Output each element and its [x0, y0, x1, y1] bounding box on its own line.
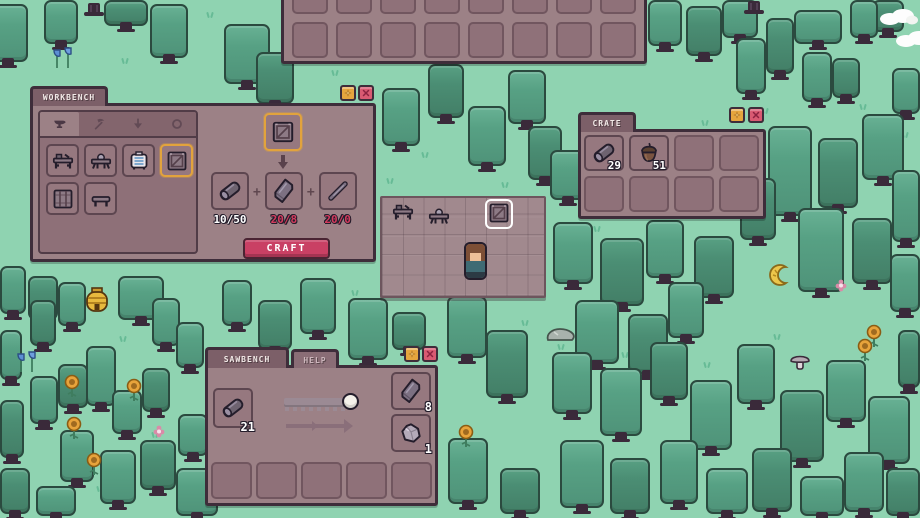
furnace-icon [127, 149, 151, 173]
tree-trunk [659, 42, 671, 52]
workbench-settings-button[interactable] [340, 85, 356, 101]
tree [826, 360, 866, 422]
inventory-slot-empty[interactable] [424, 0, 460, 14]
tree-trunk [897, 512, 909, 518]
tree [898, 330, 920, 388]
player-character [464, 242, 487, 280]
sawbench-output-chunk-slot[interactable]: 1 [391, 414, 431, 452]
tree [382, 88, 420, 146]
inventory-slot-empty[interactable] [600, 0, 636, 14]
tree-trunk [708, 294, 720, 304]
saw-progress-track [284, 398, 350, 407]
tree [766, 18, 794, 74]
workbench-close-button[interactable] [358, 85, 374, 101]
crate-slot-empty[interactable] [719, 176, 759, 212]
tree [30, 376, 58, 424]
placed-workbench[interactable] [391, 200, 425, 230]
item-count: 51 [653, 159, 666, 172]
craftable-bench-slot[interactable] [84, 182, 117, 215]
grass-tuft [350, 290, 359, 296]
tree [104, 0, 148, 26]
tree [610, 458, 650, 514]
tree [660, 440, 698, 504]
tree [44, 0, 78, 44]
crate-title: CRATE [578, 112, 636, 132]
craftable-furnace-slot[interactable] [122, 144, 155, 177]
tree-trunk [877, 176, 889, 186]
tree [428, 64, 464, 118]
flower-blue [50, 44, 76, 72]
game-viewport: WORKBENCH 10/50 [0, 0, 920, 518]
cloud [894, 30, 920, 48]
tree [686, 6, 722, 56]
tree [552, 352, 592, 414]
tree-trunk [705, 446, 717, 456]
tree [58, 282, 86, 326]
flower-pink [834, 278, 848, 292]
tree-trunk [241, 80, 253, 90]
tree [222, 280, 252, 326]
sawbench-title-label: SAWBENCH [224, 355, 271, 364]
tree-trunk [6, 454, 18, 464]
grass-tuft [858, 104, 867, 110]
crate-slot-acorn[interactable]: 51 [629, 135, 669, 171]
tree-trunk [160, 342, 172, 352]
tree [844, 452, 884, 512]
tree [890, 254, 920, 312]
sunflower [857, 338, 873, 364]
tree-trunk [866, 280, 878, 290]
grass-tuft [330, 70, 339, 76]
sawbench-input-slot[interactable]: 21 [213, 388, 253, 428]
tab-ring[interactable] [157, 112, 196, 136]
player-sprite [464, 242, 487, 280]
grass-tuft [500, 182, 509, 188]
craft-button[interactable]: CRAFT [243, 238, 330, 259]
tree [892, 68, 920, 114]
inventory-slot-empty[interactable] [424, 22, 460, 58]
tree-trunk [774, 70, 786, 80]
saw-slider-knob[interactable] [342, 393, 359, 410]
tree-trunk [812, 40, 824, 50]
workbench-title: WORKBENCH [30, 86, 108, 106]
tree-trunk [312, 330, 324, 340]
craftable-sawbench-slot[interactable] [84, 144, 117, 177]
grass-tuft [592, 226, 601, 232]
item-count: 1 [425, 442, 432, 456]
craftable-workbench-slot[interactable] [46, 144, 79, 177]
tree-trunk [461, 354, 473, 364]
tree [150, 4, 188, 58]
craftable-items-grid [46, 144, 193, 215]
tree-trunk [2, 58, 14, 68]
ingredient-log-count: 10/50 [213, 213, 246, 226]
plus-sign: + [253, 185, 261, 200]
tree-trunk [514, 510, 526, 518]
tree [802, 52, 832, 102]
tab-arrow-down[interactable] [118, 112, 157, 136]
grass-tuft [205, 12, 214, 18]
arrow-down-icon [130, 116, 146, 132]
tree-trunk [900, 238, 912, 248]
sawbench-icon [427, 204, 451, 228]
tree [553, 222, 593, 284]
tree [0, 4, 28, 62]
tree-trunk [7, 310, 19, 320]
ingredient-plank-slot[interactable] [265, 172, 303, 210]
grass-tuft [420, 152, 429, 158]
recipe-row: 10/50 + 20/8 + 20/0 [211, 172, 357, 226]
arrow-down-indicator [278, 155, 288, 170]
tree [892, 170, 920, 242]
grass-tuft [120, 58, 129, 64]
log-icon [220, 395, 246, 421]
stick-icon [325, 178, 351, 204]
tree-trunk [811, 98, 823, 108]
sparkle-icon [732, 110, 742, 120]
tree [392, 312, 426, 350]
tree-trunk [163, 54, 175, 64]
sparkle-icon [343, 88, 353, 98]
tree-trunk [591, 360, 603, 370]
tree-trunk [395, 142, 407, 152]
sunflower [458, 424, 474, 450]
sawbench-icon [89, 149, 113, 173]
workbench-catalog [38, 110, 198, 254]
tree-trunk [858, 508, 870, 518]
player-hair [466, 244, 485, 253]
crate-slot-grid: 29 51 [584, 135, 759, 212]
tree-trunk [903, 384, 915, 394]
cloud [878, 8, 918, 26]
crate-close-button[interactable] [748, 107, 764, 123]
tree-trunk [663, 396, 675, 406]
tab-anvil[interactable] [40, 112, 79, 136]
tree [142, 368, 170, 412]
tree-trunk [120, 22, 132, 32]
tree [800, 476, 844, 516]
item-count: 29 [608, 159, 621, 172]
grass-tuft [556, 344, 565, 350]
ring-icon [169, 116, 185, 132]
arrow-right-indicator [286, 424, 344, 428]
tree-trunk [615, 432, 627, 442]
grass-tuft [772, 334, 781, 340]
craftable-crate2-slot[interactable] [46, 182, 79, 215]
placed-sawbench[interactable] [427, 204, 457, 228]
sunflower [86, 452, 102, 478]
ingredient-stick-count: 20/0 [324, 213, 351, 226]
tree-trunk [766, 508, 778, 518]
craftable-crate-slot-selected[interactable] [160, 144, 193, 177]
inventory-slot-empty[interactable] [556, 0, 592, 14]
grass-tuft [385, 178, 394, 184]
selected-craft-item-slot[interactable] [264, 113, 302, 151]
plus-sign: + [307, 185, 315, 200]
inventory-slot-empty[interactable] [336, 0, 372, 14]
sawbench-help-tab[interactable]: HELP [291, 349, 339, 368]
crate-slot-log[interactable]: 29 [584, 135, 624, 171]
ingredient-plank-count: 20/8 [271, 213, 298, 226]
recipe-ingredient-stick: 20/0 [319, 172, 357, 226]
mushroom [788, 350, 812, 372]
crate-icon [270, 119, 296, 145]
tree [500, 468, 540, 514]
crate-settings-button[interactable] [729, 107, 745, 123]
top-inventory-grid [292, 0, 636, 58]
sawbench-storage-slot-empty[interactable] [256, 462, 297, 499]
sawbench-storage-slot-empty[interactable] [211, 462, 252, 499]
tree-trunk [840, 94, 852, 104]
tree-trunk [816, 512, 828, 518]
sawbench-title: SAWBENCH [205, 347, 289, 368]
tree [100, 450, 136, 504]
crate-panel: 29 51 [578, 129, 766, 219]
workbench-tabs [40, 112, 196, 138]
tree-trunk [784, 212, 796, 222]
tree-trunk [38, 420, 50, 430]
rock [544, 326, 576, 344]
workbench-title-label: WORKBENCH [43, 93, 95, 102]
tree-trunk [112, 500, 124, 510]
crate-slot-empty[interactable] [584, 176, 624, 212]
recipe-ingredient-plank: 20/8 [265, 172, 303, 226]
tree [886, 468, 920, 516]
tree-trunk [440, 114, 452, 124]
tree [794, 10, 842, 44]
player-feet [466, 272, 485, 278]
tree-trunk [501, 394, 513, 404]
tree-trunk [721, 510, 733, 518]
inventory-slot-empty[interactable] [556, 22, 592, 58]
grass-tuft [118, 336, 127, 342]
tree-trunk [567, 280, 579, 290]
sunflower [64, 374, 80, 400]
tree-trunk [745, 90, 757, 100]
sawbench-panel: 21 8 1 [205, 365, 438, 506]
sawbench-close-button[interactable] [422, 346, 438, 362]
beehive [84, 286, 110, 314]
tree-trunk [698, 52, 710, 62]
stump [80, 2, 108, 18]
inventory-slot-empty[interactable] [292, 22, 328, 58]
croissant [766, 262, 790, 288]
tree-trunk [152, 486, 164, 496]
tree [690, 380, 732, 450]
tree-trunk [576, 504, 588, 514]
tree [600, 368, 642, 436]
tree [348, 298, 388, 360]
tree [0, 468, 30, 514]
tree [737, 344, 775, 404]
top-inventory-panel [281, 0, 647, 64]
inventory-slot-empty[interactable] [468, 0, 504, 14]
sparkle-icon [407, 349, 417, 359]
tree-trunk [752, 236, 764, 246]
workbench-icon [51, 149, 75, 173]
tree [852, 218, 892, 284]
stump [740, 0, 768, 16]
tree-trunk [796, 458, 808, 468]
tree-trunk [624, 510, 636, 518]
flower-blue [14, 348, 40, 376]
tree-trunk [9, 510, 21, 518]
sawbench-storage-slot-empty[interactable] [301, 462, 342, 499]
tree-trunk [750, 400, 762, 410]
sunflower [126, 378, 142, 404]
tree [850, 0, 878, 38]
tree-trunk [67, 404, 79, 414]
tree-trunk [187, 452, 199, 462]
crate-title-label: CRATE [592, 119, 621, 128]
help-tab-label: HELP [303, 356, 326, 365]
tree [752, 448, 792, 512]
tree [600, 238, 644, 306]
ingredient-log-slot[interactable] [211, 172, 249, 210]
tree-trunk [95, 402, 107, 412]
tree-trunk [882, 28, 894, 38]
tree-trunk [462, 500, 474, 510]
inventory-slot-empty[interactable] [512, 22, 548, 58]
inventory-slot-empty[interactable] [292, 0, 328, 14]
tree-trunk [858, 34, 870, 44]
close-x-icon [751, 110, 761, 120]
tree [0, 400, 24, 458]
tree [300, 278, 336, 334]
tree [736, 38, 766, 94]
tab-pickaxe[interactable] [79, 112, 118, 136]
grass-tuft [702, 362, 711, 368]
inventory-slot-empty[interactable] [336, 22, 372, 58]
tree-trunk [135, 316, 147, 326]
log-icon [217, 178, 243, 204]
workbench-panel: 10/50 + 20/8 + 20/0 CRAFT [30, 103, 376, 262]
tree [178, 414, 208, 456]
tree-trunk [66, 322, 78, 332]
sawbench-storage-row [211, 462, 432, 499]
sunflower [66, 416, 82, 442]
tree [176, 322, 204, 368]
tree [258, 300, 292, 350]
tree [668, 282, 704, 338]
tree [468, 106, 506, 166]
tree-trunk [121, 430, 133, 440]
tree [648, 0, 682, 46]
tree-trunk [5, 376, 17, 386]
inventory-slot-empty[interactable] [380, 22, 416, 58]
tree [0, 266, 26, 314]
crate-slot-empty[interactable] [629, 176, 669, 212]
sawbench-settings-button[interactable] [404, 346, 420, 362]
player-face [466, 253, 485, 261]
recipe-ingredient-log: 10/50 [211, 172, 249, 226]
pickaxe-icon [91, 116, 107, 132]
tree-trunk [673, 500, 685, 510]
tree [30, 300, 56, 346]
workbench-icon [391, 200, 415, 224]
ingredient-stick-slot[interactable] [319, 172, 357, 210]
close-x-icon [425, 349, 435, 359]
sawbench-output-plank-slot[interactable]: 8 [391, 372, 431, 410]
crate-icon [487, 201, 511, 225]
tree-trunk [184, 364, 196, 374]
item-count: 8 [425, 400, 432, 414]
tree-trunk [481, 162, 493, 172]
tree-trunk [50, 512, 62, 518]
tree [706, 468, 748, 514]
sawbench-storage-slot-empty[interactable] [391, 462, 432, 499]
tree-trunk [566, 410, 578, 420]
inventory-slot-empty[interactable] [512, 0, 548, 14]
inventory-slot-empty[interactable] [600, 22, 636, 58]
tree-trunk [150, 408, 162, 418]
crate-icon [165, 149, 189, 173]
crate-slot-empty[interactable] [674, 135, 714, 171]
tree-trunk [899, 308, 911, 318]
tree-trunk [191, 512, 203, 518]
tree-trunk [659, 274, 671, 284]
tree [650, 342, 688, 400]
placed-crate[interactable] [487, 201, 511, 227]
item-count: 21 [241, 420, 255, 434]
bench-icon [89, 187, 113, 211]
flower-pink [152, 424, 166, 438]
inventory-slot-empty[interactable] [380, 0, 416, 14]
tree-trunk [840, 418, 852, 428]
tree [646, 220, 684, 278]
tree [36, 486, 76, 516]
chunk-icon [398, 420, 424, 446]
anvil-icon [52, 116, 68, 132]
tree-trunk [231, 322, 243, 332]
sawbench-storage-slot-empty[interactable] [346, 462, 387, 499]
tree [560, 440, 604, 508]
tree [486, 330, 528, 398]
crate-slot-empty[interactable] [674, 176, 714, 212]
tree [508, 70, 546, 124]
tree-trunk [562, 196, 574, 206]
crate2-icon [51, 187, 75, 211]
close-x-icon [361, 88, 371, 98]
tree [832, 58, 860, 98]
crate-slot-empty[interactable] [719, 135, 759, 171]
grass-tuft [520, 320, 529, 326]
inventory-slot-empty[interactable] [468, 22, 504, 58]
tree [140, 440, 176, 490]
tree-trunk [815, 288, 827, 298]
grass-tuft [700, 120, 709, 126]
tree [818, 138, 858, 208]
player-shirt [466, 261, 485, 272]
plank-icon [271, 178, 297, 204]
plank-icon [398, 378, 424, 404]
tree [447, 296, 487, 358]
